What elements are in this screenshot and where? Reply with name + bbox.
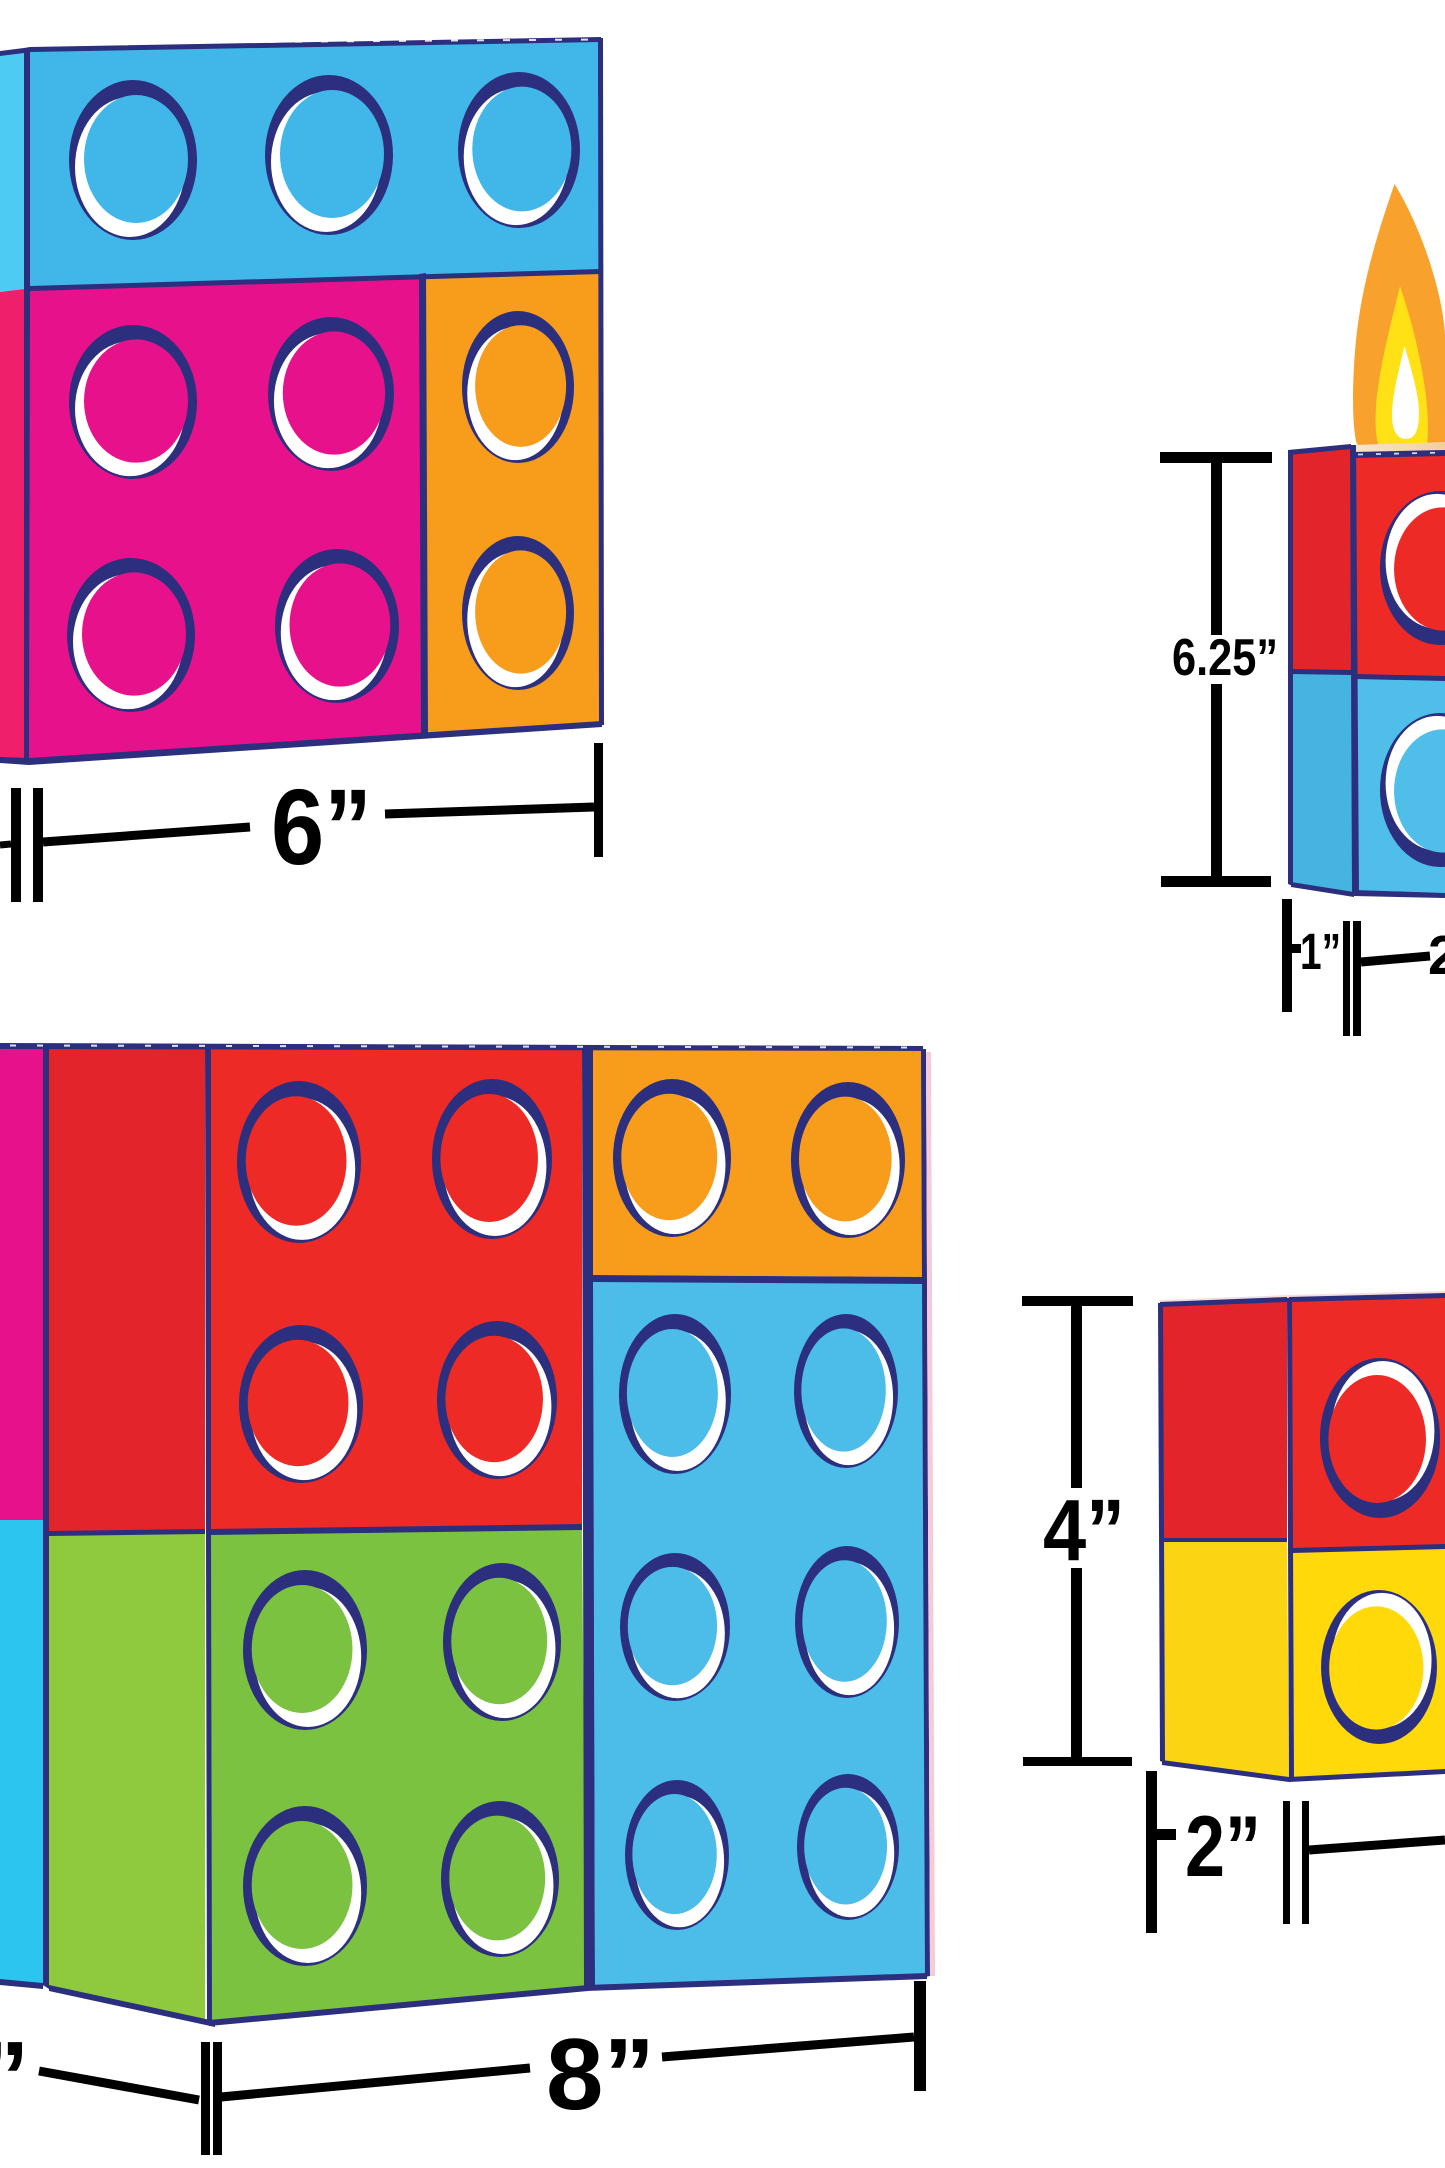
- svg-text:8”: 8”: [546, 2019, 655, 2131]
- svg-text:2: 2: [1428, 924, 1445, 986]
- svg-text:4”: 4”: [1043, 1482, 1125, 1579]
- svg-text:1”: 1”: [1300, 923, 1341, 980]
- svg-text:6”: 6”: [271, 766, 372, 887]
- svg-text:”: ”: [0, 2022, 30, 2134]
- svg-text:6.25”: 6.25”: [1172, 629, 1278, 687]
- svg-text:2”: 2”: [1185, 1799, 1261, 1895]
